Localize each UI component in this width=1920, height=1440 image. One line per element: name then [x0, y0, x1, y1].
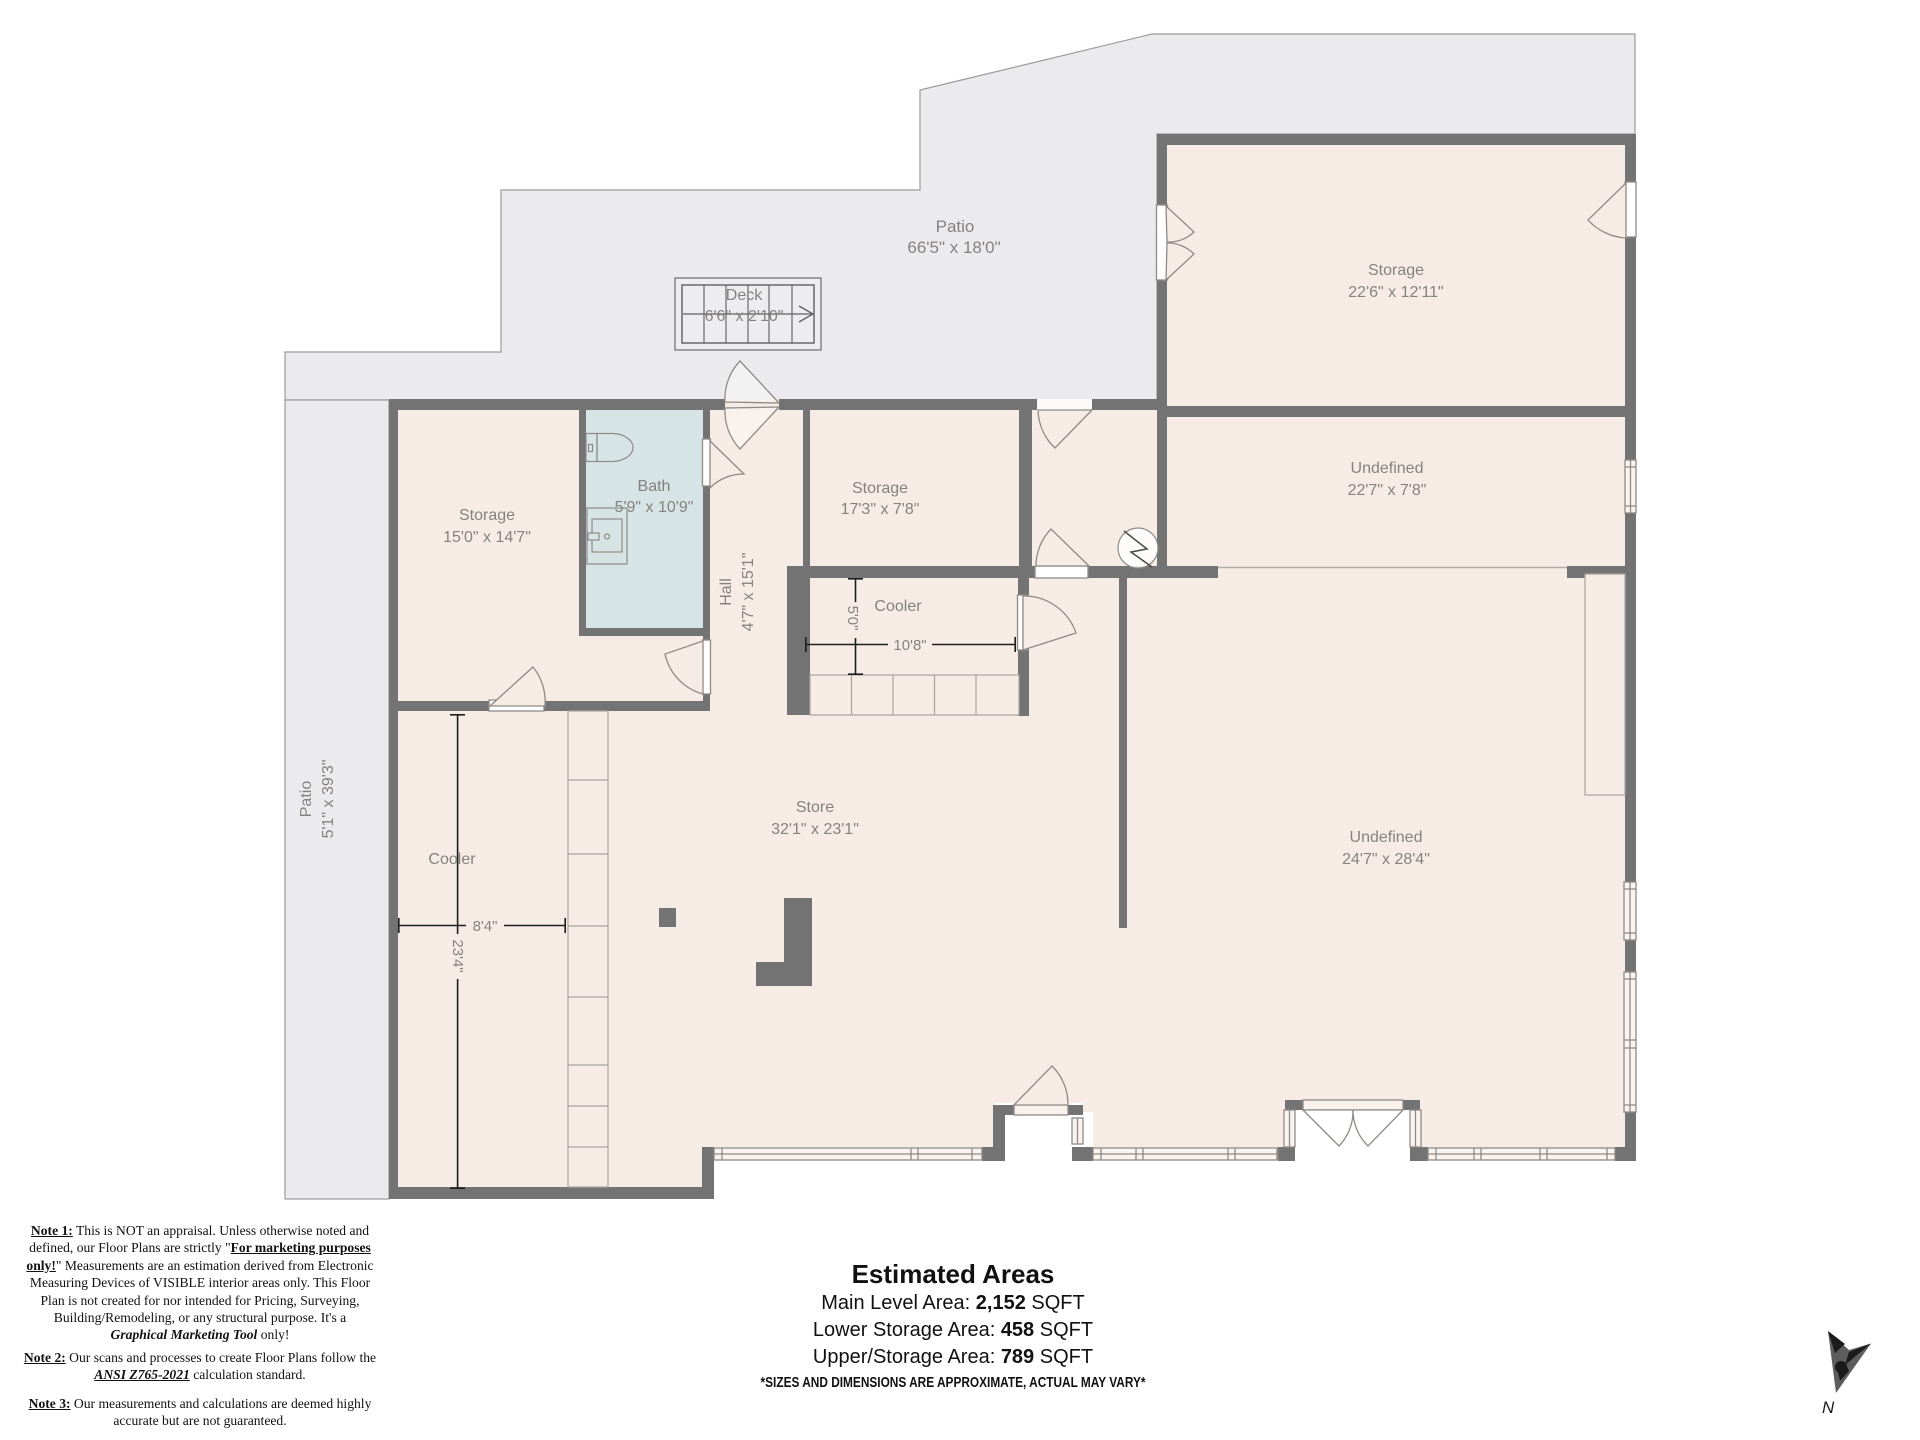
svg-text:Undefined: Undefined	[1350, 829, 1423, 846]
svg-text:6'6" x 2'10": 6'6" x 2'10"	[705, 308, 784, 325]
svg-text:5'1" x 39'3": 5'1" x 39'3"	[320, 760, 337, 839]
svg-text:Cooler: Cooler	[874, 598, 922, 615]
svg-text:Hall: Hall	[718, 578, 735, 606]
svg-text:Deck: Deck	[726, 287, 763, 304]
svg-text:Patio: Patio	[298, 781, 315, 818]
svg-text:Storage: Storage	[852, 480, 908, 497]
svg-text:Undefined: Undefined	[1351, 460, 1424, 477]
svg-text:24'7" x 28'4": 24'7" x 28'4"	[1342, 851, 1430, 868]
svg-text:17'3" x 7'8": 17'3" x 7'8"	[841, 501, 920, 518]
svg-text:N: N	[1822, 1398, 1835, 1417]
svg-text:Patio: Patio	[936, 217, 975, 236]
svg-text:Storage: Storage	[1368, 262, 1424, 279]
svg-text:Bath: Bath	[638, 478, 671, 495]
svg-text:66'5" x 18'0": 66'5" x 18'0"	[907, 238, 1000, 257]
svg-text:5'0": 5'0"	[844, 606, 861, 631]
svg-text:32'1" x 23'1": 32'1" x 23'1"	[771, 821, 859, 838]
svg-text:23'4": 23'4"	[449, 939, 466, 972]
svg-text:Cooler: Cooler	[428, 851, 476, 868]
svg-text:5'9" x 10'9": 5'9" x 10'9"	[615, 499, 694, 516]
svg-text:22'7" x 7'8": 22'7" x 7'8"	[1348, 482, 1427, 499]
svg-text:Store: Store	[796, 799, 834, 816]
svg-text:4'7" x 15'1": 4'7" x 15'1"	[740, 553, 757, 632]
svg-text:15'0" x 14'7": 15'0" x 14'7"	[443, 529, 531, 546]
svg-text:8'4": 8'4"	[473, 918, 498, 935]
svg-text:Storage: Storage	[459, 507, 515, 524]
svg-text:10'8": 10'8"	[893, 637, 926, 654]
svg-text:22'6" x 12'11": 22'6" x 12'11"	[1348, 284, 1443, 301]
